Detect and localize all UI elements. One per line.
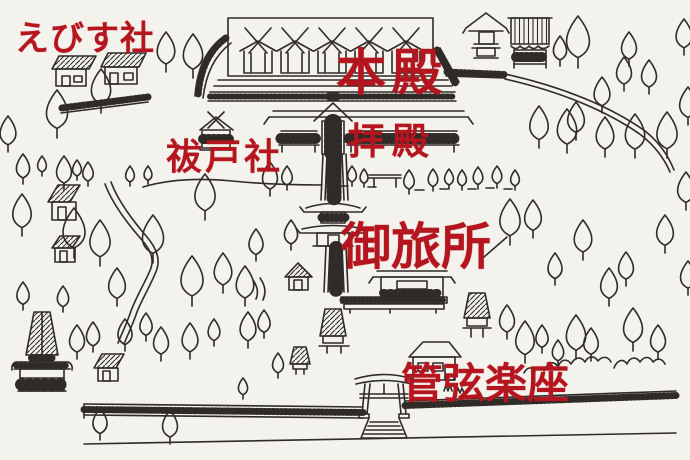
small-shrines-top-right [463,13,552,68]
ebisu-shrine-buildings [52,53,148,113]
small-hut-mid [253,263,312,300]
fence [62,97,148,108]
path-dashes [340,186,512,190]
label-honden: 本殿 [336,48,448,98]
fence-right [447,72,504,75]
kagura-hall [12,312,72,391]
label-haiden: 拝殿 [348,123,436,160]
bench [369,175,401,187]
label-otabisho: 御旅所 [341,222,491,272]
shrine-precinct-map: えびす社 本殿 祓戸社 拝殿 御旅所 管弦楽座 [0,0,690,460]
steps [362,422,406,438]
winding-path [105,184,152,343]
otabisho-stage [341,271,455,313]
haraedo-path [143,179,322,187]
step-rails [361,418,407,438]
path-arcs [253,278,265,300]
label-haraedo-sha: 祓戸社 [166,140,283,176]
small-hut-bottom-left [94,354,124,381]
label-kangen-gakuza: 管弦楽座 [401,363,569,405]
label-ebisu-sha: えびす社 [15,22,155,56]
